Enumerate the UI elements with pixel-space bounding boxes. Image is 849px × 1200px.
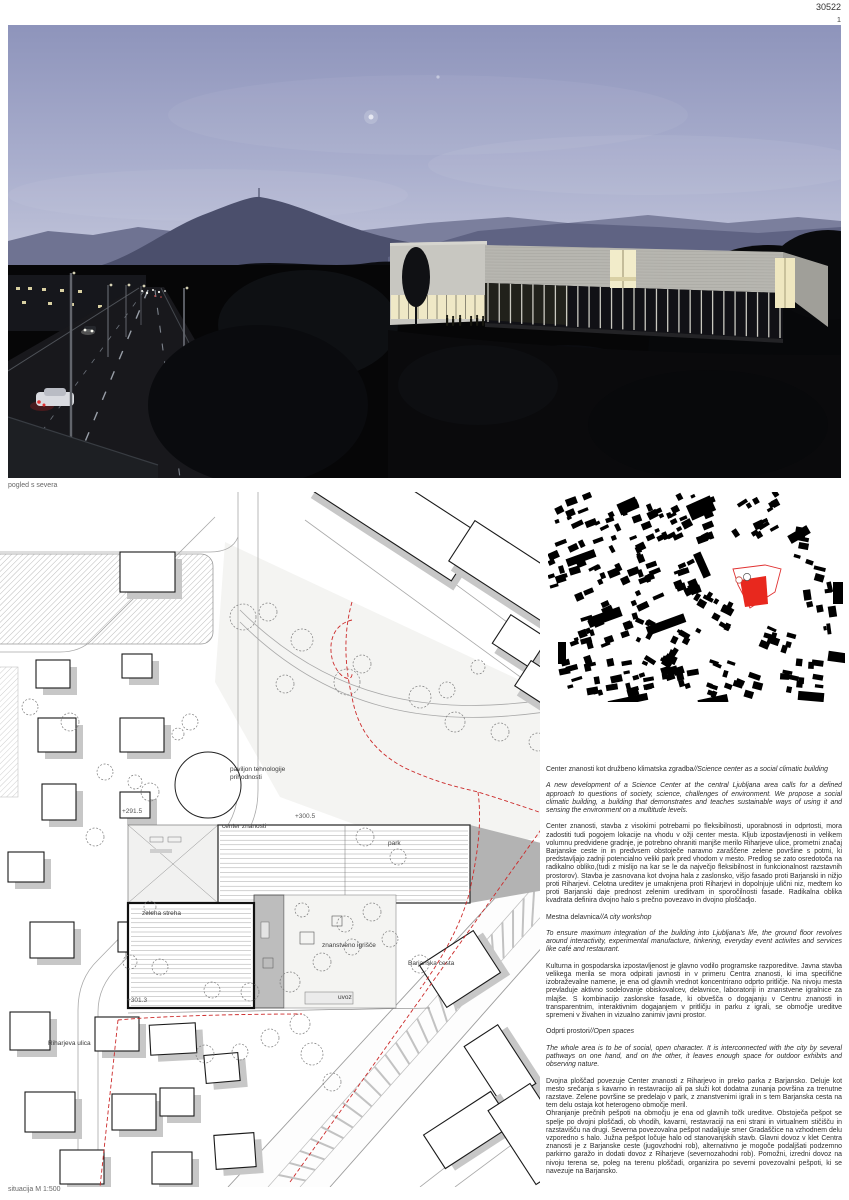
- house: [60, 1150, 111, 1187]
- site-marker-building: [740, 576, 768, 607]
- paragraph-sl-1: Center znanosti, stavba z visokimi potre…: [546, 823, 842, 905]
- pavilion-circle: [175, 752, 241, 818]
- label-riharjeva: Riharjeva ulica: [48, 1040, 91, 1048]
- render-caption: pogled s severa: [8, 482, 57, 489]
- text-column: Center znanosti kot družbeno klimatska z…: [546, 766, 842, 1176]
- section-heading-3: Odprti prostori//Open spaces: [546, 1028, 842, 1036]
- label-elev-301: +301.3: [127, 997, 147, 1005]
- label-center-znanosti: center znanosti: [222, 823, 266, 831]
- house: [112, 1094, 163, 1137]
- house: [10, 1012, 57, 1057]
- heading-en: //A city workshop: [600, 914, 652, 921]
- house: [30, 922, 81, 965]
- label-barjanska: Barjanska cesta: [408, 960, 454, 968]
- label-pavilion: paviljon tehnologije prihodnosti: [230, 766, 286, 781]
- house: [152, 1152, 199, 1187]
- paragraph-sl-3b: Ohranjanje prečnih pešpoti na območju je…: [546, 1110, 842, 1176]
- paragraph-sl-3a: Dvojna ploščad povezuje Center znanosti …: [546, 1078, 842, 1111]
- house: [120, 718, 171, 759]
- key-map: [548, 492, 845, 702]
- section-heading-1: Center znanosti kot družbeno klimatska z…: [546, 766, 842, 774]
- house: [95, 1017, 146, 1058]
- night-rendering: [8, 25, 841, 478]
- heading-en: //Open spaces: [590, 1028, 634, 1035]
- upper-hall: [218, 825, 470, 903]
- key-map-svg: [548, 492, 845, 702]
- house: [25, 1092, 82, 1139]
- page-number: 1: [837, 15, 841, 24]
- competition-code: 30522: [816, 2, 841, 12]
- label-science-playground: znanstveno igrišče: [322, 942, 380, 950]
- label-uvoz: uvoz: [338, 994, 352, 1002]
- rendering-svg: [8, 25, 841, 478]
- heading-sl: Mestna delavnica: [546, 914, 600, 921]
- heading-en: //Science center as a social climatic bu…: [693, 766, 827, 773]
- site-plan-svg: [0, 492, 540, 1187]
- label-elev-300: +300.5: [295, 813, 315, 821]
- heading-sl: Odprti prostori: [546, 1028, 590, 1035]
- playground-area: [284, 895, 396, 1008]
- siteplan-caption: situacija M 1:500: [8, 1186, 61, 1193]
- house: [120, 552, 182, 599]
- label-green-roof: zelena streha: [142, 910, 181, 918]
- competition-board: 30522 1: [0, 0, 849, 1200]
- lit-ground-floor: [391, 295, 486, 319]
- heading-sl: Center znanosti kot družbeno klimatska z…: [546, 766, 693, 773]
- paragraph-en-3: The whole area is to be of social, open …: [546, 1045, 842, 1070]
- connection-strip: [254, 895, 284, 1008]
- site-plan: [0, 492, 540, 1187]
- paragraph-en-2: To ensure maximum integration of the bui…: [546, 930, 842, 955]
- label-elev-291: +291.5: [122, 808, 142, 816]
- green-roof-hall: [128, 903, 254, 1008]
- section-heading-2: Mestna delavnica//A city workshop: [546, 914, 842, 922]
- foreground-tree: [402, 247, 430, 307]
- paragraph-sl-2: Kulturna in gospodarska izpostavljenost …: [546, 963, 842, 1020]
- label-park: park: [388, 840, 401, 848]
- paragraph-en-1: A new development of a Science Center at…: [546, 782, 842, 815]
